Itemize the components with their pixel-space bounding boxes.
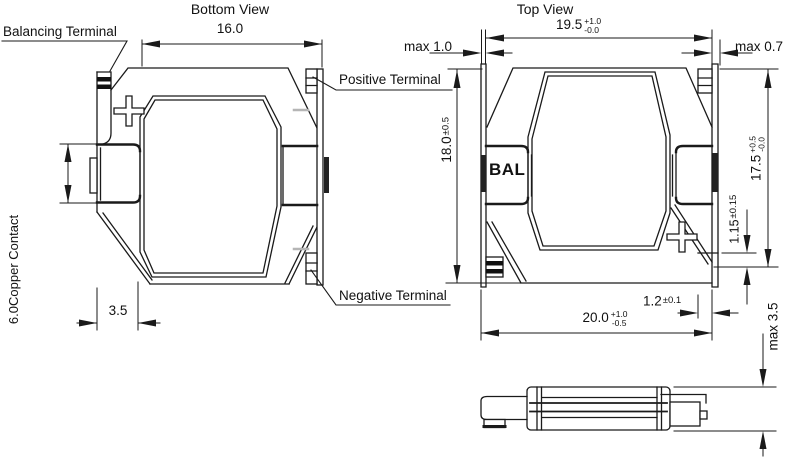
positive-terminal-tab: [306, 69, 317, 93]
dim-terminal-width-1-2: 1.2±0.1: [643, 293, 681, 309]
side-left-tab: [481, 397, 527, 420]
bottom-view-title: Bottom View: [170, 2, 290, 17]
balancing-terminal-tab: [97, 72, 111, 212]
top-view-title: Top View: [485, 2, 605, 17]
copper-contact-label: 6.0Copper Contact: [6, 197, 21, 342]
side-body: [527, 387, 670, 430]
dim-16-lines: [142, 40, 322, 67]
positive-terminal-label: Positive Terminal: [339, 72, 441, 87]
drawing-canvas: [0, 0, 790, 458]
copper-contact: [90, 158, 97, 193]
plus-polarity-mark-top-icon: [667, 222, 697, 252]
copper-contact-mark-right: [713, 153, 719, 192]
dim-width-16: 16.0: [205, 21, 255, 36]
side-right-block: [670, 402, 700, 426]
negative-terminal-label: Negative Terminal: [339, 288, 447, 303]
balancing-terminal-label: Balancing Terminal: [3, 24, 117, 39]
dim-height-18: 18.0±0.5: [438, 95, 454, 185]
dim-terminal-height-17-5: 17.5+0.5-0.0: [749, 111, 766, 207]
side-view-drawing: [481, 334, 776, 456]
right-terminal-plate-top: [673, 64, 719, 287]
dim-inset-3-5: 3.5: [97, 303, 139, 318]
cell-outline-bottom: [140, 96, 281, 277]
copper-contact-mark-left: [481, 155, 486, 192]
balancing-mark-box: [486, 257, 503, 277]
dim-right-max: max 0.7: [735, 39, 783, 54]
dim-thickness-max3-5: max 3.5: [766, 292, 781, 362]
dim-overall-width-20: 20.0+1.0-0.5: [560, 310, 650, 327]
cell-outline-top: [528, 72, 670, 250]
positive-terminal-tab-top: [698, 69, 712, 93]
technical-drawing-page: Bottom View Top View Balancing Terminal …: [0, 0, 790, 458]
right-terminal-plate: [283, 69, 329, 285]
copper-contact-right: [324, 157, 329, 193]
dim-top-width-19-5: 19.5+1.0-0.0: [556, 17, 601, 34]
negative-terminal-tab: [306, 253, 317, 284]
side-right-nub: [700, 411, 707, 419]
dim-left-max: max 1.0: [397, 39, 452, 54]
bal-marking: BAL: [489, 162, 525, 177]
dim-terminal-step-1-15: 1.15±0.15: [726, 174, 743, 264]
dim-19-5-lines: [482, 30, 713, 64]
